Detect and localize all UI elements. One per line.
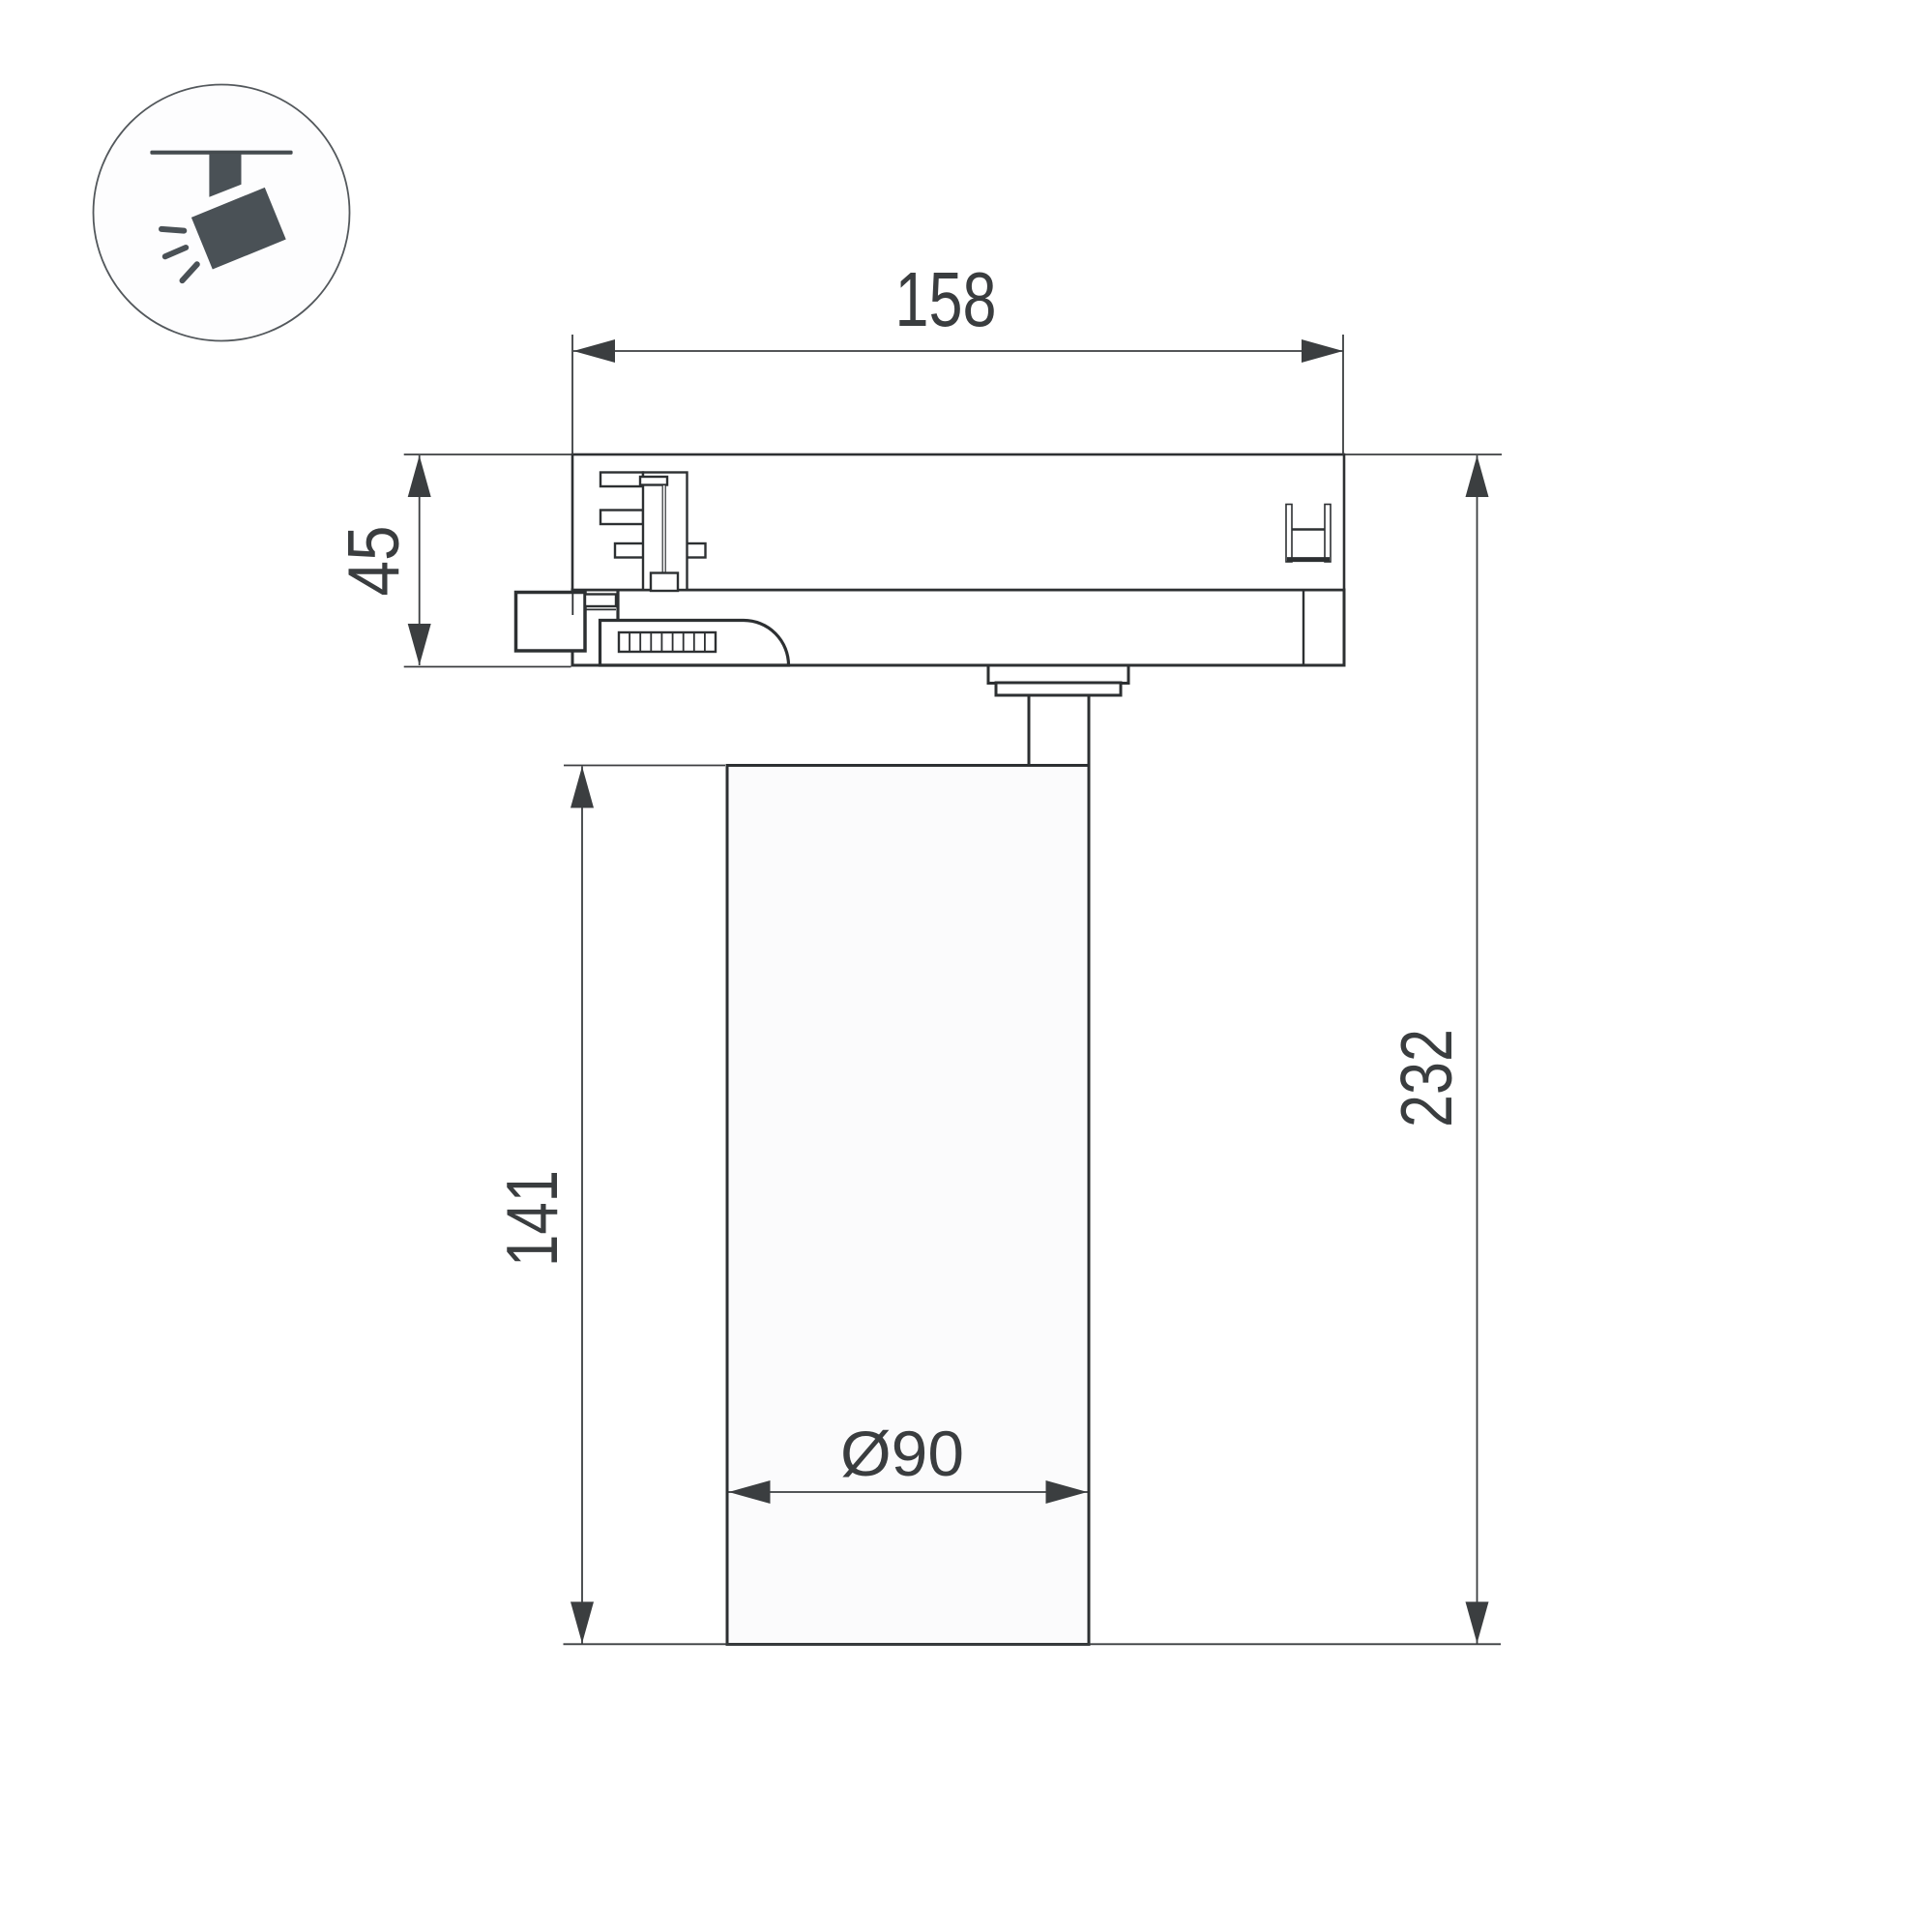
svg-text:232: 232 (1386, 1029, 1467, 1127)
svg-text:141: 141 (491, 1170, 572, 1267)
svg-text:158: 158 (895, 256, 997, 342)
svg-text:Ø90: Ø90 (840, 1418, 964, 1489)
svg-text:45: 45 (333, 526, 414, 597)
